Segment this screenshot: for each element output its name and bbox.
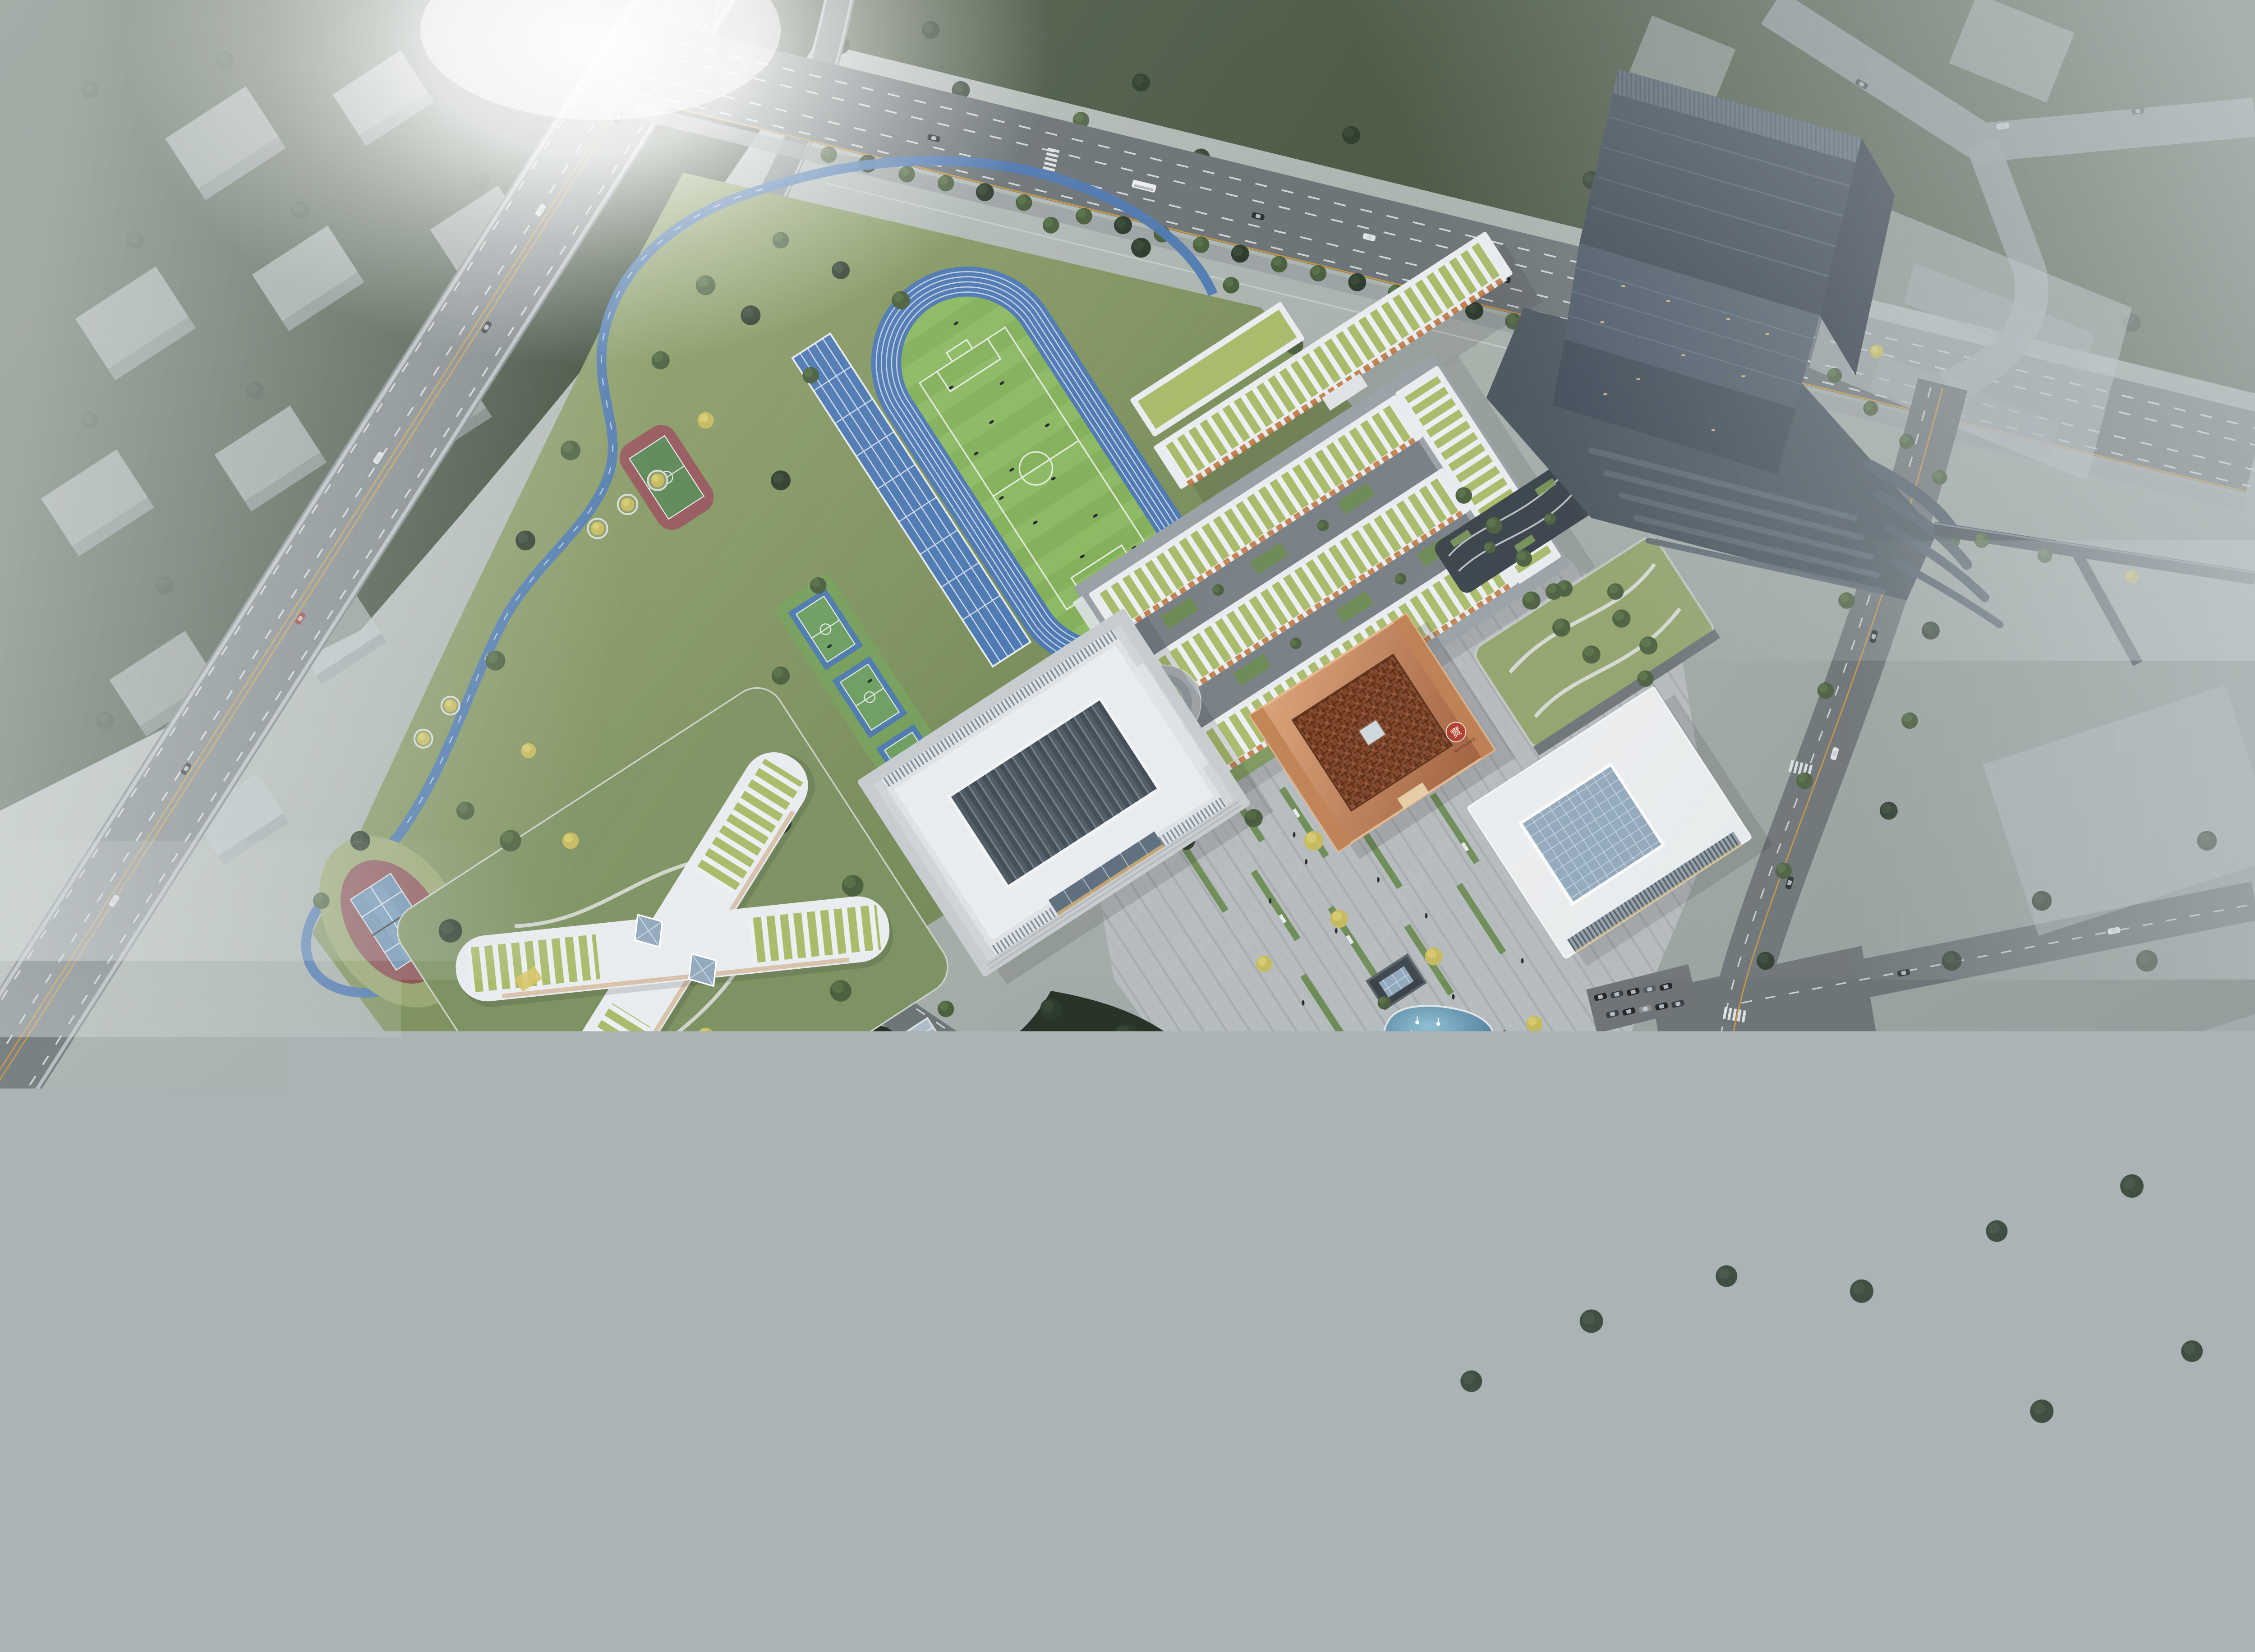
aerial-rendering: 實 温州市实验中学 — [0, 0, 2255, 1501]
